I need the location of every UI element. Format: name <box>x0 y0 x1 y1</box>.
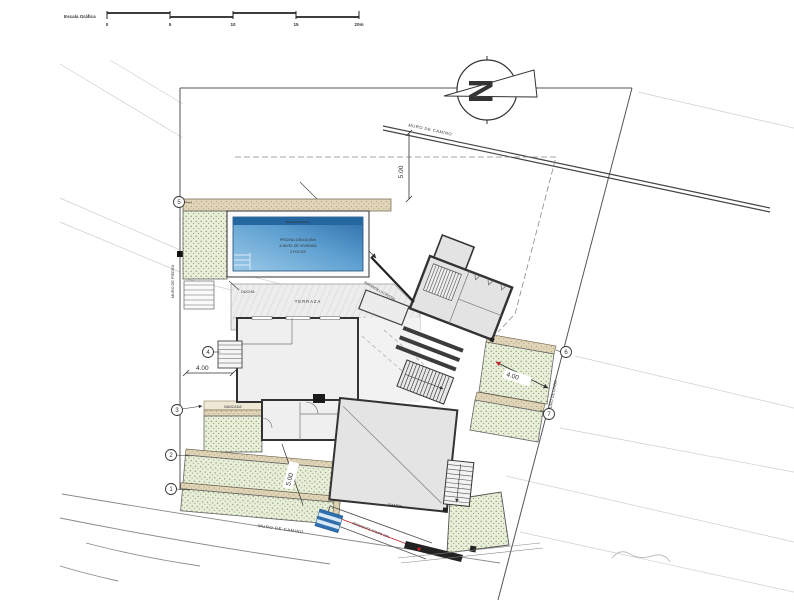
left-garden-stair <box>184 281 214 309</box>
svg-text:5: 5 <box>169 22 172 27</box>
setback-top-dimension: 5.00 <box>398 165 405 178</box>
site-plan-drawing: MURO DE CAMINO MURO DE LINDE MURO DE PIE… <box>0 0 794 600</box>
lower-wing <box>329 398 458 513</box>
entry-stair <box>218 341 242 368</box>
ducha-label: DUCHA <box>241 290 255 294</box>
svg-text:PISCINA 4,50x10,50m: PISCINA 4,50x10,50m <box>280 238 316 242</box>
house-windows <box>252 317 340 320</box>
svg-text:A NIVEL DE VIVIENDA: A NIVEL DE VIVIENDA <box>279 244 317 248</box>
svg-text:15: 15 <box>293 22 299 27</box>
svg-text:10: 10 <box>230 22 236 27</box>
lower-wing-stair <box>443 460 473 506</box>
north-letter: N <box>461 79 499 104</box>
svg-text:0: 0 <box>106 22 109 27</box>
terraza-label: TERRAZA <box>295 299 322 304</box>
pool-bench-label: BANCO 50x40cm <box>286 220 310 224</box>
svg-text:2 FOCOS: 2 FOCOS <box>290 250 306 254</box>
wall-post <box>470 546 477 553</box>
fireplace <box>313 394 325 403</box>
ramp-red-point <box>417 547 420 550</box>
survey-point <box>177 251 183 257</box>
pool: BANCO 50x40cm PISCINA 4,50x10,50m A NIVE… <box>227 211 369 277</box>
bancada-label: BANCADA <box>224 405 242 409</box>
scale-bar-label: Escala Gráfica <box>64 14 96 19</box>
stone-wall-label: MURO DE PIEDRA <box>171 264 175 298</box>
svg-text:20m: 20m <box>354 22 363 27</box>
svg-text:4.00: 4.00 <box>196 365 209 372</box>
bancada-planter: BANCADA <box>204 401 262 452</box>
